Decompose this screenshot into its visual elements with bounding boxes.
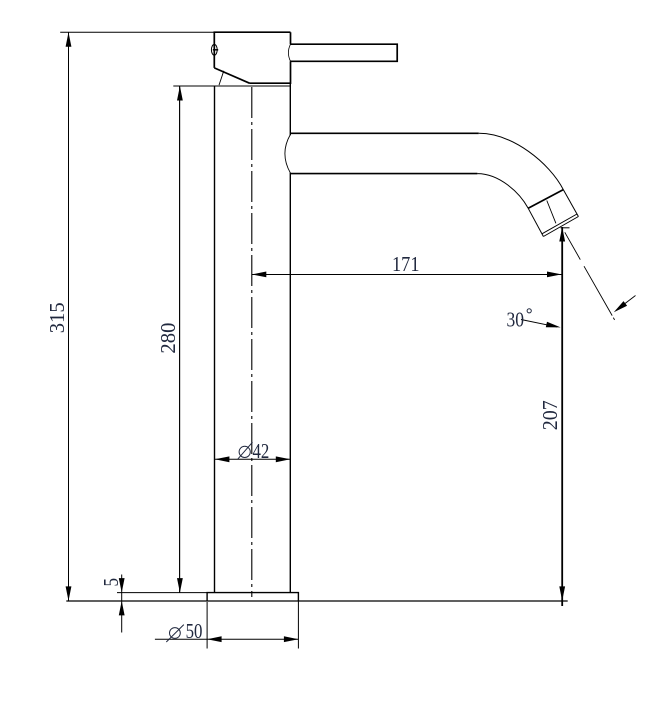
svg-text:50: 50 bbox=[186, 619, 203, 643]
svg-text:30: 30 bbox=[507, 308, 525, 332]
svg-text:171: 171 bbox=[392, 252, 420, 276]
svg-text:315: 315 bbox=[45, 302, 69, 333]
svg-text:207: 207 bbox=[538, 400, 562, 430]
svg-text:5: 5 bbox=[99, 578, 123, 587]
svg-text:42: 42 bbox=[253, 439, 270, 463]
svg-text:280: 280 bbox=[156, 323, 180, 354]
